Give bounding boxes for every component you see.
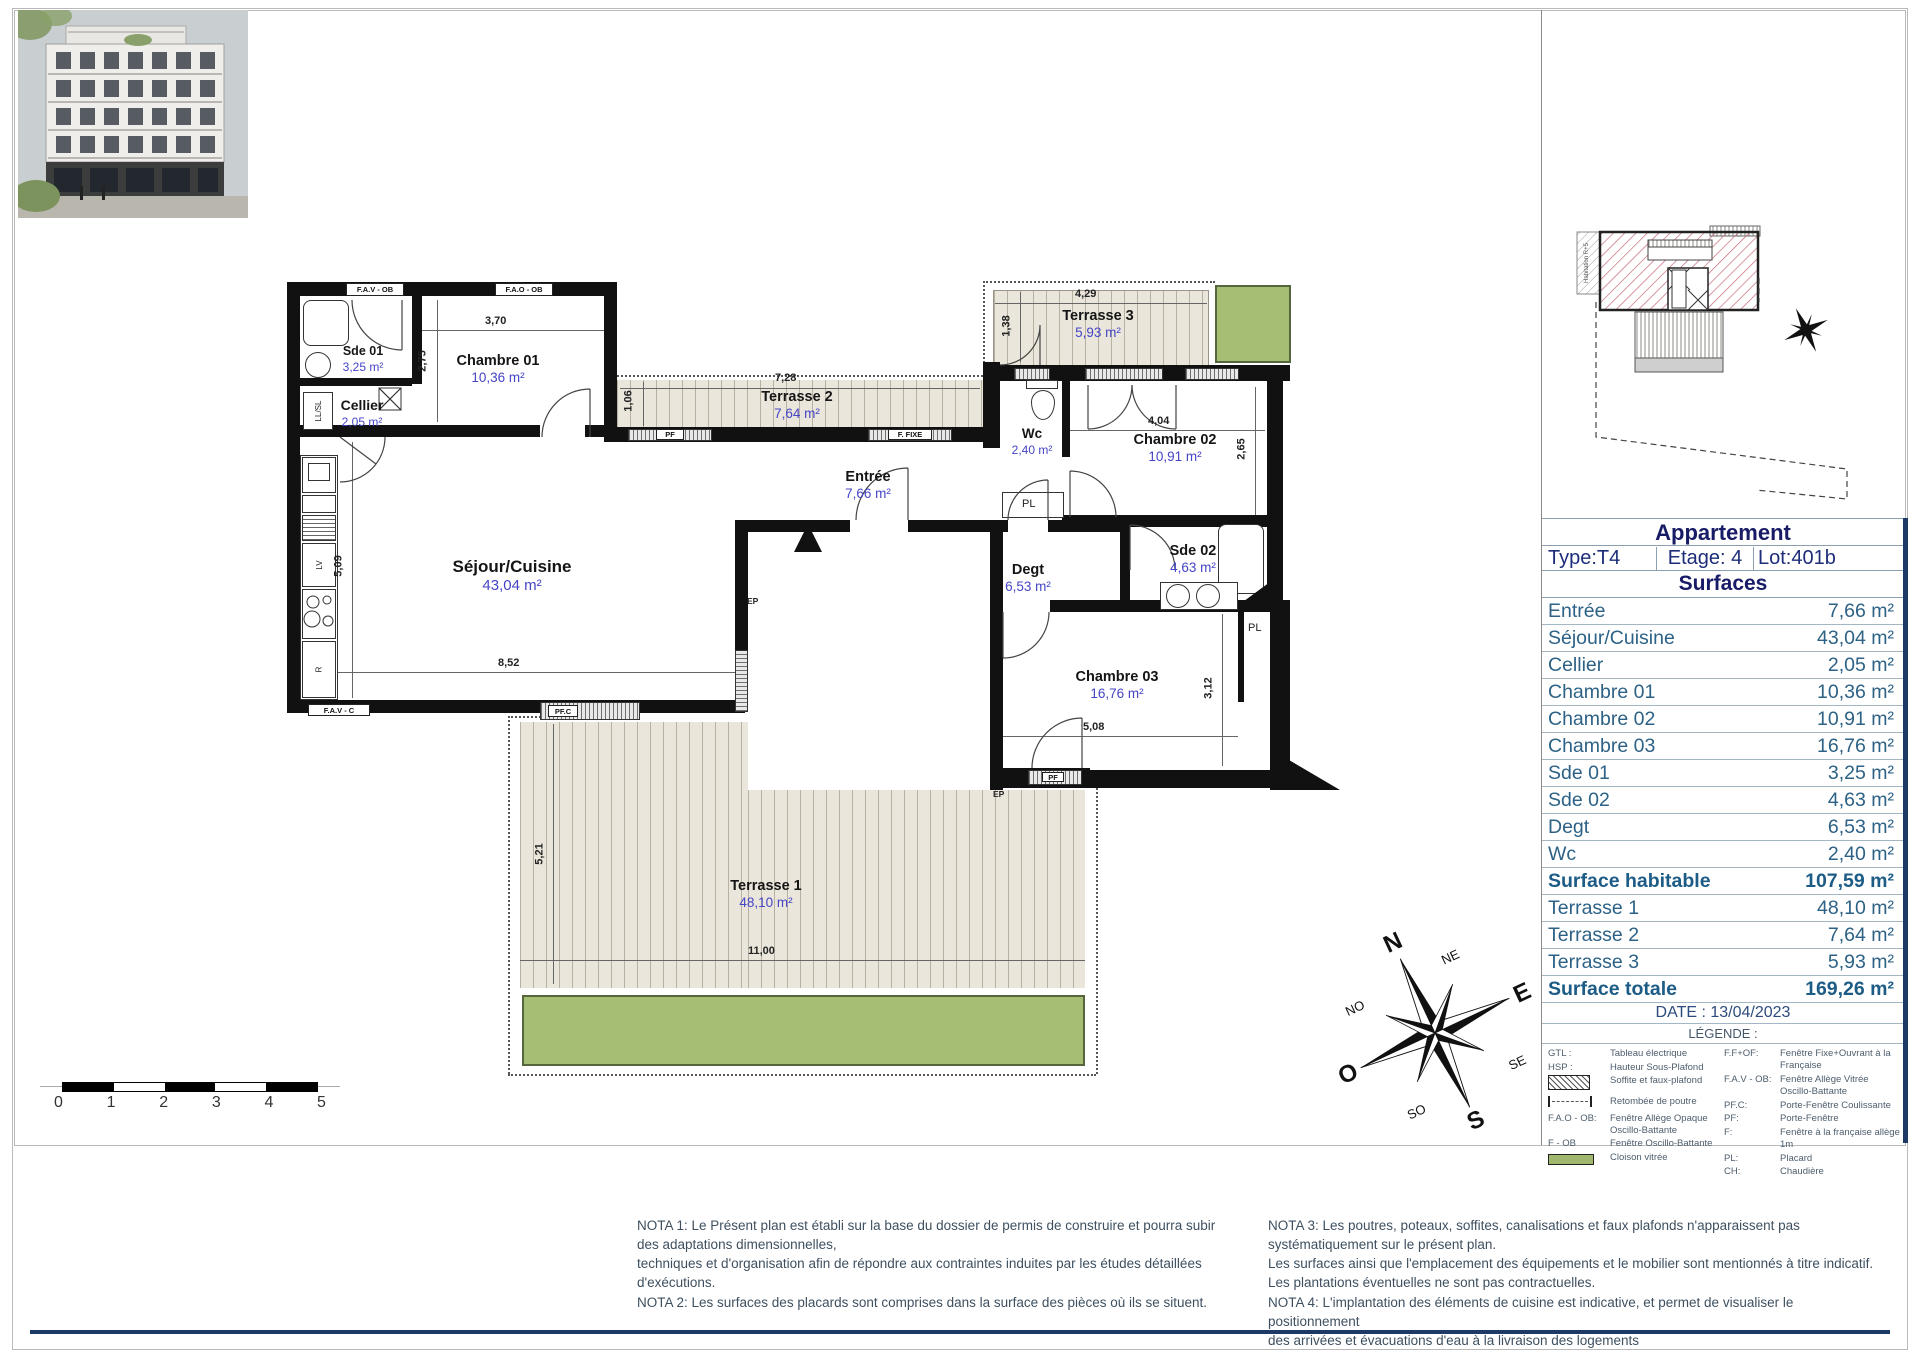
washbasin xyxy=(1166,584,1190,608)
terrace3-edge-left xyxy=(983,281,985,367)
scale-ticks: 012345 xyxy=(54,1094,326,1112)
nota-right: NOTA 3: Les poutres, poteaux, soffites, … xyxy=(1268,1216,1886,1350)
scale-seg xyxy=(215,1083,266,1091)
wall-segment xyxy=(990,520,1008,532)
window xyxy=(1014,368,1050,380)
scale-tick: 0 xyxy=(54,1094,63,1112)
room-label-terrasse2: Terrasse 27,64 m² xyxy=(727,388,867,423)
compass-no: NO xyxy=(1343,997,1367,1019)
date-row: DATE : 13/04/2023 xyxy=(1542,1003,1904,1024)
wall-segment xyxy=(414,425,540,437)
wall-segment xyxy=(287,282,300,713)
dimension-line xyxy=(1255,387,1256,515)
surface-row: Chambre 0210,91 m² xyxy=(1542,706,1904,733)
cooktop-burners-icon xyxy=(302,589,336,639)
terrace-thumbnail xyxy=(1635,312,1723,358)
dimension-line xyxy=(1020,292,1021,362)
legend-item: F.F+OF:Fenêtre Fixe+Ouvrant à la Françai… xyxy=(1724,1048,1904,1072)
wall-segment xyxy=(1270,600,1290,790)
window-label: F.A.O - OB xyxy=(495,283,553,296)
dimension-label: 5,08 xyxy=(1083,721,1104,733)
legend-item: CH:Chaudière xyxy=(1724,1166,1904,1178)
surface-row: Cellier2,05 m² xyxy=(1542,652,1904,679)
terrace1-edge-left xyxy=(508,716,510,1074)
dimension-line xyxy=(995,303,1207,304)
dimension-label: 4,29 xyxy=(1075,288,1096,300)
surface-row: Entrée7,66 m² xyxy=(1542,598,1904,625)
dimension-line xyxy=(412,330,604,331)
scale-seg xyxy=(114,1083,165,1091)
surface-row: Sde 013,25 m² xyxy=(1542,760,1904,787)
terrace1-decking-left xyxy=(520,722,748,988)
scale-seg xyxy=(266,1083,317,1091)
dimension-label: 3,12 xyxy=(1203,677,1215,698)
ep-label: EP xyxy=(747,596,758,606)
room-label-terrasse3: Terrasse 35,93 m² xyxy=(1028,307,1168,342)
beam-swatch xyxy=(1548,1096,1592,1107)
wall-segment xyxy=(604,282,617,442)
room-label-chambre03: Chambre 0316,76 m² xyxy=(1047,668,1187,703)
dimension-line xyxy=(352,442,353,698)
legend-item: Soffite et faux-plafond xyxy=(1548,1075,1720,1094)
wall-segment xyxy=(300,378,412,386)
room-label-sde02: Sde 024,63 m² xyxy=(1123,542,1263,577)
scale-tick: 5 xyxy=(317,1094,326,1112)
legend-item: F.A.O - OB:Fenêtre Allège Opaque Oscillo… xyxy=(1548,1113,1720,1137)
room-label-chambre02: Chambre 0210,91 m² xyxy=(1105,431,1245,466)
window-label: PF xyxy=(1042,772,1064,782)
room-label-sde01: Sde 013,25 m² xyxy=(303,344,423,375)
surface-row-habitable: Surface habitable107,59 m² xyxy=(1542,868,1904,895)
wall-segment xyxy=(735,520,748,650)
wall-segment xyxy=(287,282,617,296)
room-label-cellier: Cellier2,05 m² xyxy=(322,397,402,430)
apartment-type: Type:T4 xyxy=(1542,547,1656,570)
apartment-lot: Lot:401b xyxy=(1754,547,1904,570)
placard-label: PL xyxy=(1022,498,1035,510)
legend-item: PF.C:Porte-Fenêtre Coulissante xyxy=(1724,1100,1904,1112)
window-label: F. FIXE xyxy=(888,429,932,440)
scale-tick: 4 xyxy=(264,1094,273,1112)
compass-e: E xyxy=(1509,977,1535,1008)
room-label-entree: Entrée7,66 m² xyxy=(798,468,938,503)
room-label-chambre01: Chambre 0110,36 m² xyxy=(428,352,568,387)
window-label: F.A.V - C xyxy=(308,704,370,716)
window xyxy=(1085,368,1163,380)
legend-item: PF:Porte-Fenêtre xyxy=(1724,1113,1904,1125)
wall-segment xyxy=(1048,520,1120,532)
toilet-tank xyxy=(1026,380,1058,389)
apartment-meta-row: Type:T4 Etage: 4 Lot:401b xyxy=(1542,546,1904,571)
legend-item: HSP :Hauteur Sous-Plafond xyxy=(1548,1062,1720,1074)
dimension-label: 3,70 xyxy=(485,315,506,327)
wall-segment xyxy=(1267,365,1283,605)
dimension-label: 1,38 xyxy=(1001,315,1013,336)
window-label: PF.C xyxy=(548,705,578,717)
dimension-label: 8,52 xyxy=(498,657,519,669)
scale-bar xyxy=(62,1082,318,1092)
soffite-hatch-swatch xyxy=(1548,1075,1590,1090)
terrace3-edge-top xyxy=(983,281,1215,283)
dishwasher: LV xyxy=(302,543,336,587)
kitchen-unit xyxy=(302,495,336,513)
compass-o: O xyxy=(1334,1058,1362,1090)
dimension-label: 4,04 xyxy=(1148,415,1169,427)
legend-left-column: GTL :Tableau électrique HSP :Hauteur Sou… xyxy=(1548,1048,1720,1171)
legend-item: GTL :Tableau électrique xyxy=(1548,1048,1720,1060)
legend-item: PL:Placard xyxy=(1724,1153,1904,1165)
terrace3-planter xyxy=(1215,285,1291,363)
terrace1-edge-bottom xyxy=(508,1074,1096,1076)
scale-tick: 2 xyxy=(159,1094,168,1112)
compass-s: S xyxy=(1463,1105,1489,1136)
dimension-line xyxy=(300,672,740,673)
dimension-line xyxy=(643,382,644,426)
ep-label: EP xyxy=(993,789,1004,799)
kitchen-vent xyxy=(302,515,336,541)
scale-seg xyxy=(165,1083,216,1091)
dimension-line xyxy=(520,960,1085,961)
floorplan-sheet: Habitation R+5 xyxy=(0,0,1920,1357)
site-plan-thumbnail: Habitation R+5 xyxy=(1560,218,1905,508)
window xyxy=(1185,368,1239,380)
surface-row: Chambre 0316,76 m² xyxy=(1542,733,1904,760)
window xyxy=(735,650,748,712)
wall-segment xyxy=(1082,770,1290,788)
legend-title: LÉGENDE : xyxy=(1542,1024,1904,1044)
compass-ne: NE xyxy=(1439,946,1462,967)
legend-item: F.A.V - OB:Fenêtre Allège Vitrée Oscillo… xyxy=(1724,1074,1904,1098)
compass-n: N xyxy=(1379,927,1406,959)
terrace2-edge xyxy=(617,375,983,377)
window-label: PF xyxy=(656,429,684,440)
dimension-label: 5,21 xyxy=(534,843,546,864)
scale-tick: 3 xyxy=(212,1094,221,1112)
placard-label: PL xyxy=(1248,622,1261,634)
dimension-label: 11,00 xyxy=(748,945,775,957)
building-photo xyxy=(18,10,248,218)
dimension-line xyxy=(1003,736,1238,737)
dimension-label: 5,09 xyxy=(333,555,345,576)
washbasin xyxy=(1196,584,1220,608)
compass-se: SE xyxy=(1506,1052,1528,1073)
shower-tray xyxy=(303,300,349,346)
compass-so: SO xyxy=(1405,1101,1428,1123)
room-label-wc: Wc2,40 m² xyxy=(972,426,1092,458)
kitchen-sink xyxy=(308,463,330,481)
dimension-line xyxy=(1222,614,1223,766)
window-label: F.A.V - OB xyxy=(346,283,404,296)
surfaces-title: Surfaces xyxy=(1542,571,1904,598)
surface-row: Terrasse 35,93 m² xyxy=(1542,949,1904,976)
scale-tick: 1 xyxy=(107,1094,116,1112)
legend-item: F - OBFenêtre Oscillo-Battante xyxy=(1548,1138,1720,1150)
wall-segment xyxy=(748,520,850,532)
terrace1-planter xyxy=(522,995,1085,1066)
wall-segment xyxy=(585,425,617,437)
fridge: R xyxy=(302,641,336,698)
surface-row: Wc2,40 m² xyxy=(1542,841,1904,868)
surface-row: Terrasse 148,10 m² xyxy=(1542,895,1904,922)
wall-segment xyxy=(908,520,990,532)
dimension-label: 7,28 xyxy=(775,372,796,384)
apartment-floor: Etage: 4 xyxy=(1656,547,1754,570)
legend-item: Retombée de poutre xyxy=(1548,1096,1720,1111)
surface-row: Chambre 0110,36 m² xyxy=(1542,679,1904,706)
nota-left: NOTA 1: Le Présent plan est établi sur l… xyxy=(637,1216,1227,1312)
site-plan-label: Habitation R+5 xyxy=(1584,242,1590,283)
glazed-partition-swatch xyxy=(1548,1154,1594,1165)
legend-right-column: F.F+OF:Fenêtre Fixe+Ouvrant à la Françai… xyxy=(1724,1048,1904,1180)
terrace1-edge-right xyxy=(1096,788,1098,1074)
surface-row-total: Surface totale169,26 m² xyxy=(1542,976,1904,1003)
apartment-title: Appartement xyxy=(1542,518,1904,546)
room-label-degt: Degt6,53 m² xyxy=(958,561,1098,596)
wall-segment xyxy=(1238,612,1244,702)
room-label-sejour: Séjour/Cuisine43,04 m² xyxy=(432,556,592,596)
surface-row: Séjour/Cuisine43,04 m² xyxy=(1542,625,1904,652)
surface-row: Terrasse 27,64 m² xyxy=(1542,922,1904,949)
fridge-label: R xyxy=(292,654,347,686)
mini-compass-icon xyxy=(1774,298,1838,362)
dimension-label: 1,06 xyxy=(623,390,635,411)
surface-row: Degt6,53 m² xyxy=(1542,814,1904,841)
compass-rose-icon: N E S O NE SE SO NO xyxy=(1330,915,1540,1145)
scale-seg xyxy=(63,1083,114,1091)
dimension-line xyxy=(553,724,554,984)
surface-row: Sde 024,63 m² xyxy=(1542,787,1904,814)
room-label-terrasse1: Terrasse 148,10 m² xyxy=(696,877,836,912)
legend-item: Cloison vitrée xyxy=(1548,1152,1720,1169)
legend-item: F:Fenêtre à la française allège 1m xyxy=(1724,1127,1904,1151)
